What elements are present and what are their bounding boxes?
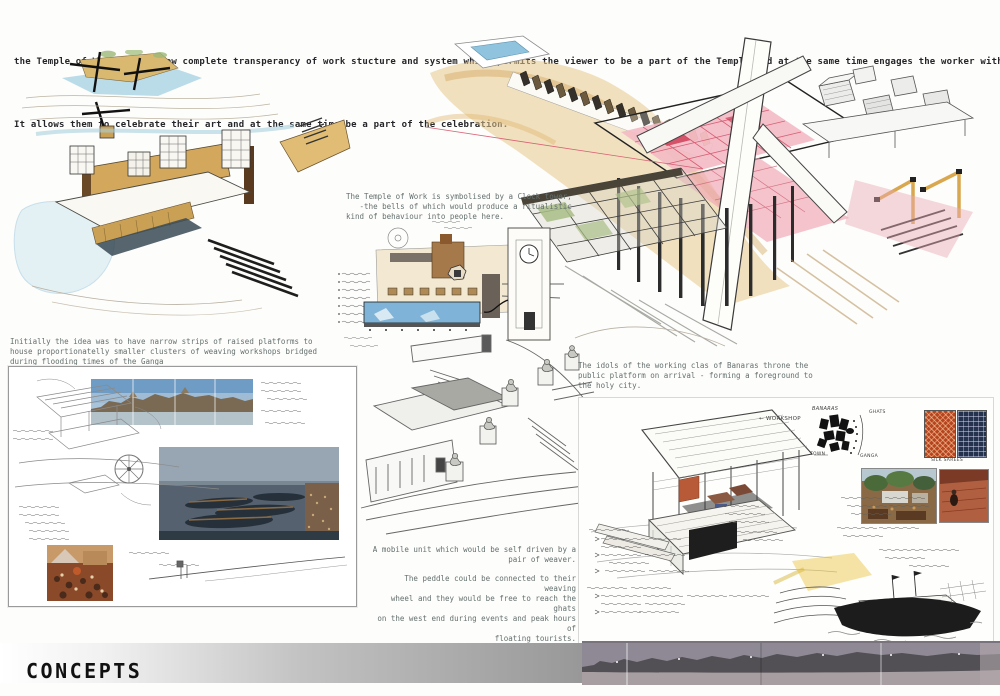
- sketch-notes-and-boat: [579, 398, 993, 649]
- mobile-unit-paragraph-1: A mobile unit which would be self driven…: [372, 545, 576, 565]
- sketch-raised-platforms-axonometric: [12, 50, 352, 338]
- sketch-public-platform-idols: [356, 330, 596, 548]
- footer-band: [0, 641, 1000, 685]
- panel-workshop-study: ← WORKSHOP BANARAS GHATS TOWN: [578, 397, 994, 650]
- sketch-shore-section-annotations: [9, 367, 356, 606]
- caption-clock-tower: The Temple of Work is symbolised by a Cl…: [346, 192, 572, 222]
- concept-board-page: the Temple of Work must allow complete t…: [0, 0, 1000, 696]
- photo-river-panorama-strip: [582, 641, 1000, 685]
- caption-idols: The idols of the working clas of Banaras…: [578, 361, 813, 391]
- page-title: CONCEPTS: [26, 659, 142, 683]
- panel-site-study: [8, 366, 357, 607]
- mobile-unit-paragraph-2: The peddle could be connected to their w…: [372, 574, 576, 644]
- caption-raised-platforms: Initially the idea was to have narrow st…: [10, 337, 317, 367]
